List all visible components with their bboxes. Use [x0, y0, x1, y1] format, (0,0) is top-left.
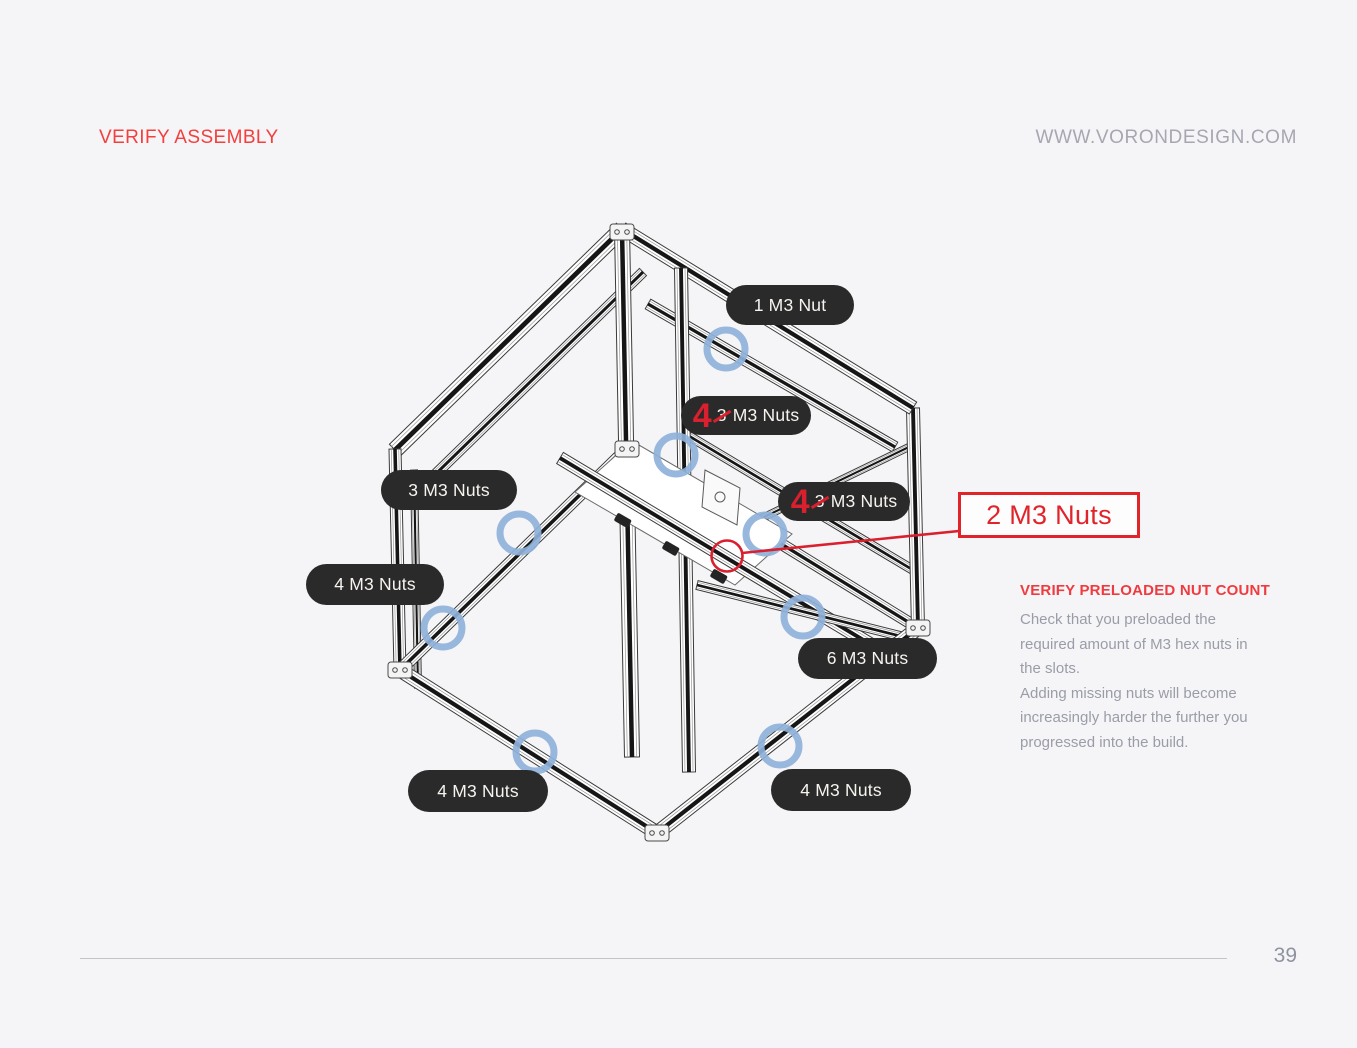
page-number: 39 — [1274, 944, 1297, 968]
label-text: 4 M3 Nuts — [437, 781, 519, 802]
label-corrected-4-m3-nuts-right: 4 3 M3 Nuts — [778, 482, 910, 521]
extrusion-edge — [398, 233, 625, 454]
corrected-count: 4 — [791, 485, 810, 519]
note-line: required amount of M3 hex nuts in — [1020, 633, 1272, 658]
manual-page: VERIFY ASSEMBLY WWW.VORONDESIGN.COM 1 M3… — [0, 0, 1357, 1048]
label-1-m3-nut: 1 M3 Nut — [726, 285, 854, 325]
corner-bracket — [610, 224, 634, 240]
note-line: increasingly harder the further you — [1020, 706, 1272, 731]
struck-old-count: 3 — [814, 491, 826, 512]
label-text: 3 M3 Nuts — [408, 480, 490, 501]
extrusion-edge — [398, 674, 655, 837]
label-6-m3-nuts: 6 M3 Nuts — [798, 638, 937, 679]
corner-bracket — [906, 620, 930, 636]
corner-bracket — [388, 662, 412, 678]
verify-note: VERIFY PRELOADED NUT COUNT Check that yo… — [1020, 582, 1272, 755]
corrected-count: 4 — [693, 399, 712, 433]
note-line: Adding missing nuts will become — [1020, 682, 1272, 707]
label-text: 4 M3 Nuts — [800, 780, 882, 801]
label-4-m3-nuts-left: 4 M3 Nuts — [306, 564, 444, 605]
label-text: M3 Nuts — [733, 405, 800, 426]
extrusion-slot — [395, 229, 622, 450]
callout-2-m3-nuts: 2 M3 Nuts — [958, 492, 1140, 538]
frame-diagram: 1 M3 Nut 3 M3 Nuts 4 M3 Nuts 6 M3 Nuts 4… — [0, 0, 1357, 1048]
label-4-m3-nuts-bottom-right: 4 M3 Nuts — [771, 769, 911, 811]
label-text: 4 M3 Nuts — [334, 574, 416, 595]
label-4-m3-nuts-bottom-left: 4 M3 Nuts — [408, 770, 548, 812]
corner-bracket — [645, 825, 669, 841]
label-text: 6 M3 Nuts — [827, 648, 909, 669]
note-line: Check that you preloaded the — [1020, 608, 1272, 633]
note-title: VERIFY PRELOADED NUT COUNT — [1020, 582, 1272, 599]
label-corrected-4-m3-nuts-top: 4 3 M3 Nuts — [681, 396, 811, 435]
corner-bracket — [615, 441, 639, 457]
note-line: the slots. — [1020, 657, 1272, 682]
note-line: progressed into the build. — [1020, 731, 1272, 756]
label-3-m3-nuts: 3 M3 Nuts — [381, 470, 517, 510]
struck-old-count: 3 — [716, 405, 728, 426]
label-text: M3 Nuts — [831, 491, 898, 512]
footer-divider — [80, 958, 1227, 959]
callout-text: 2 M3 Nuts — [986, 500, 1112, 531]
label-text: 1 M3 Nut — [754, 295, 827, 316]
printer-frame-illustration — [0, 0, 1357, 1048]
